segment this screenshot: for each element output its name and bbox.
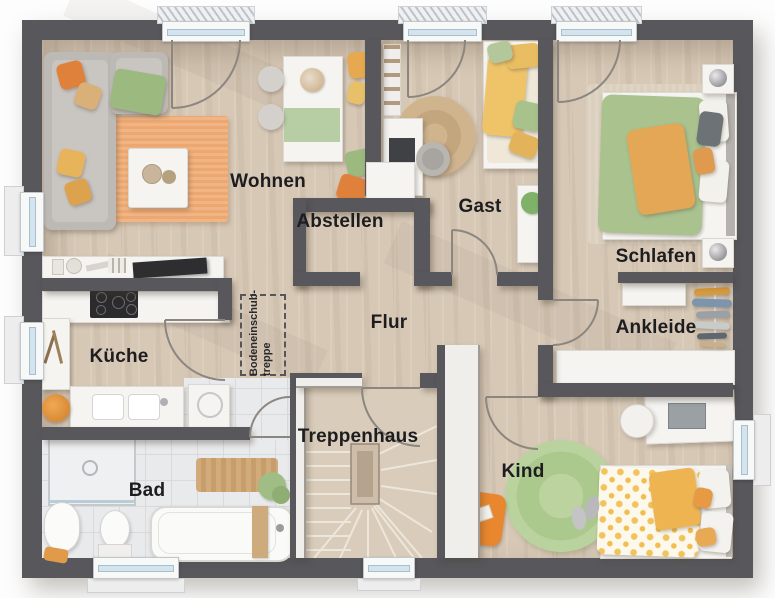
wall-treppenhaus-top-stub [420,373,437,388]
room-label-kind: Kind [501,461,544,483]
room-label-schlafen: Schlafen [616,246,697,268]
kitchen-sink [92,394,124,420]
window [733,420,755,480]
attic-stairs-label-line2: treppe [261,290,274,376]
lamp [709,69,727,87]
clothes [692,298,732,307]
cabinet [366,162,415,200]
decor-books [108,258,126,273]
plant [272,486,290,504]
burner [96,292,107,303]
wall-kueche-wohnen [42,278,225,291]
room-label-wohnen: Wohnen [230,171,306,193]
room-label-treppenhaus: Treppenhaus [298,426,418,448]
desk-chair-seat [422,148,444,170]
washbasin [44,502,80,552]
wall-gast-flur-b [497,272,538,286]
room-label-abstellen: Abstellen [296,211,383,233]
floor-plan: Bodeneinschub- treppe Wohnen Abstellen G… [0,0,775,598]
burner [126,304,137,315]
room-label-bad: Bad [129,480,166,502]
window-glass [561,29,632,36]
window [363,557,415,579]
window-glass [29,327,36,375]
pillow [696,110,724,147]
window [93,557,179,579]
wall-schlafen-ankleide [618,272,733,283]
decor-roll [66,258,82,274]
vase-flowers [300,68,324,92]
clothes [697,332,727,339]
window-glass [408,29,477,36]
wardrobe [556,350,735,385]
wall-kueche-flur [218,278,232,320]
room-label-gast: Gast [458,196,501,218]
plant-decor [162,170,176,184]
desk-chair [620,404,654,438]
wall-treppenhaus-top [296,373,362,388]
clothes [699,342,725,348]
table-runner [284,108,340,142]
washing-machine-door [197,392,223,418]
toilet-bowl [100,510,130,548]
window-glass [368,565,410,572]
dining-chair [258,104,284,130]
wall-kind-top [538,383,733,397]
window-glass [29,197,36,247]
window [403,21,482,42]
room-label-kueche: Küche [89,346,148,368]
burner [96,305,106,315]
wall-gast-schlafen [538,40,553,300]
faucet [160,398,168,406]
wall-gast-flur-a [414,272,452,286]
window-glass [741,425,748,475]
window-sill [87,578,185,593]
bath-tray [252,506,268,558]
window-sill [753,414,771,486]
faucet [276,524,284,532]
bowl [142,164,162,184]
window-sill [357,578,421,591]
window-glass [98,565,174,572]
clothes [696,310,730,318]
shower-drain [82,460,98,476]
pillow [695,527,718,548]
window-glass [167,29,245,36]
window [556,21,637,42]
window [162,21,250,42]
lamp [709,243,727,261]
burner [112,296,125,309]
room-label-flur: Flur [371,312,408,334]
wall-bad-top [42,427,250,440]
dresser [622,283,686,306]
decor-jar [52,259,64,275]
wall-treppenhaus-left [290,373,306,558]
fruit-bowl [42,394,70,422]
bookshelf [383,44,401,116]
pillow [692,146,716,175]
attic-stairs-label-line1: Bodeneinschub- [248,290,261,376]
window [20,192,44,252]
wall-abstellen-top [293,198,430,212]
attic-stairs-label: Bodeneinschub- treppe [248,290,274,376]
burner [126,292,136,302]
wall-treppenhaus-kind [437,345,480,558]
room-label-ankleide: Ankleide [616,317,697,339]
pillow [56,148,87,179]
wall-abstellen-bottom [293,272,360,286]
window [20,322,44,380]
toilet-tank [98,544,132,558]
dining-chair [258,66,284,92]
kitchen-sink [128,394,160,420]
laptop [668,403,706,429]
kitchen-counter-bottom [70,386,184,430]
